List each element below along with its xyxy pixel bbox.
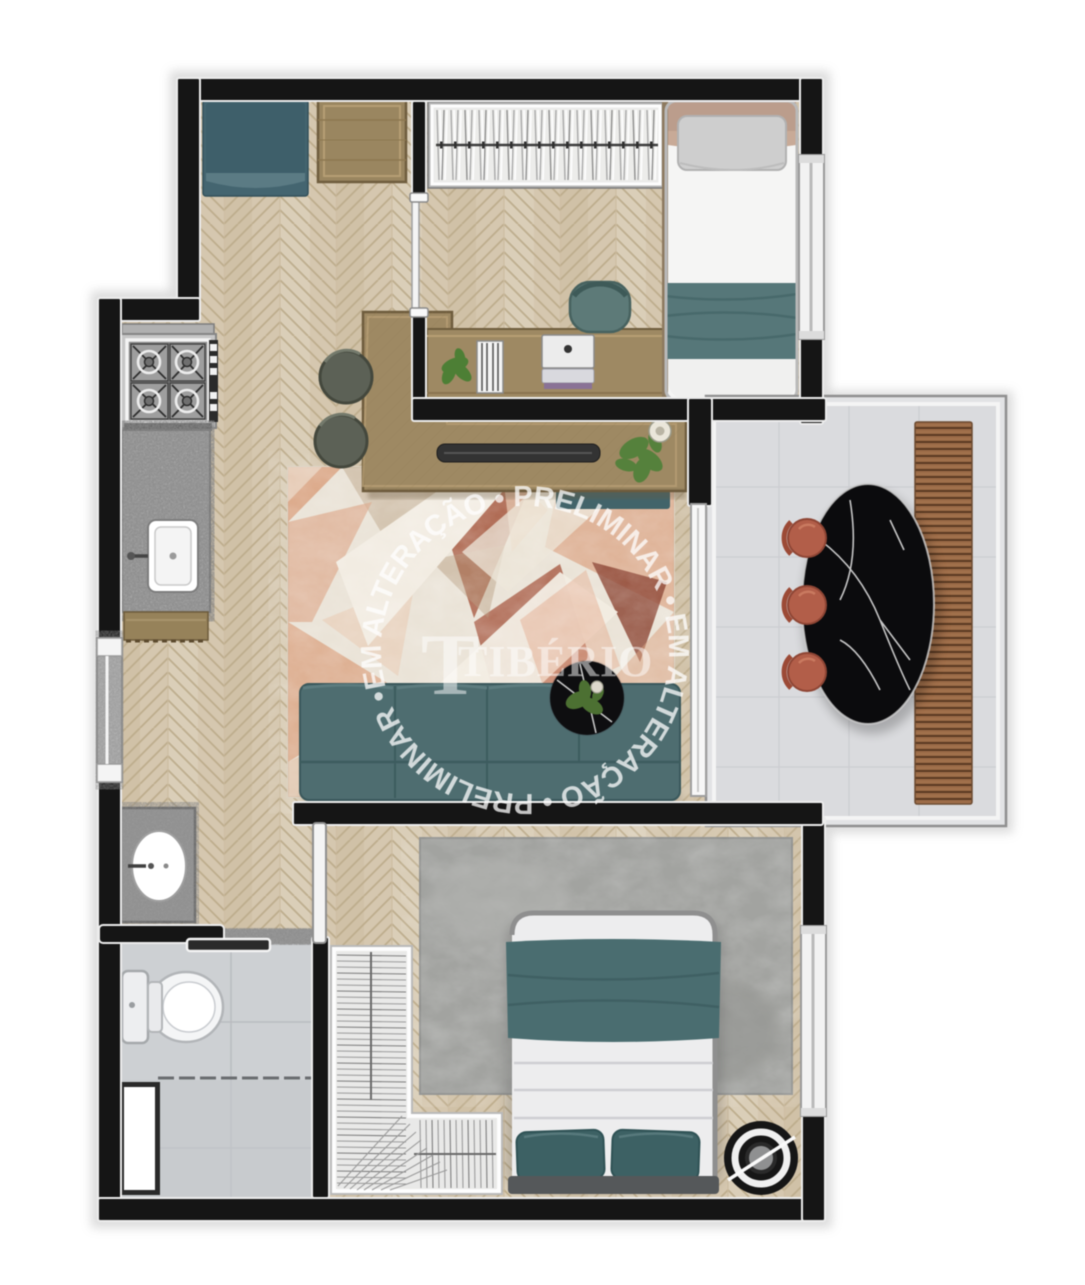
svg-text:TIBÉRIO: TIBÉRIO — [458, 637, 653, 686]
